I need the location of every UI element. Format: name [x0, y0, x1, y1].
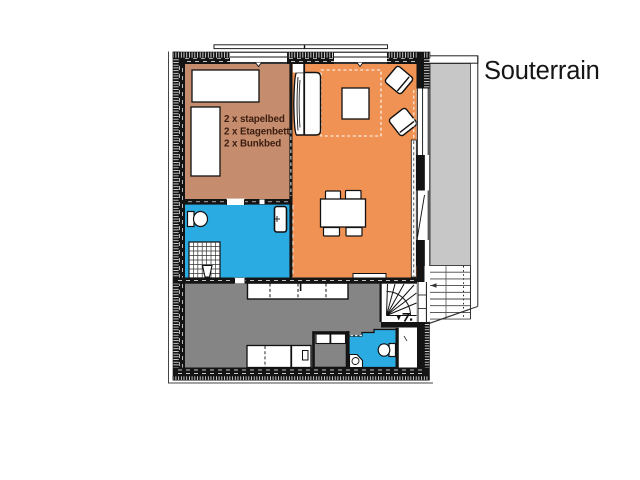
svg-text:2 x Etagenbett: 2 x Etagenbett: [224, 126, 290, 137]
svg-text:2 x stapelbed: 2 x stapelbed: [224, 114, 285, 125]
svg-text:Souterrain: Souterrain: [484, 57, 600, 85]
svg-text:2 x Bunkbed: 2 x Bunkbed: [224, 139, 281, 150]
